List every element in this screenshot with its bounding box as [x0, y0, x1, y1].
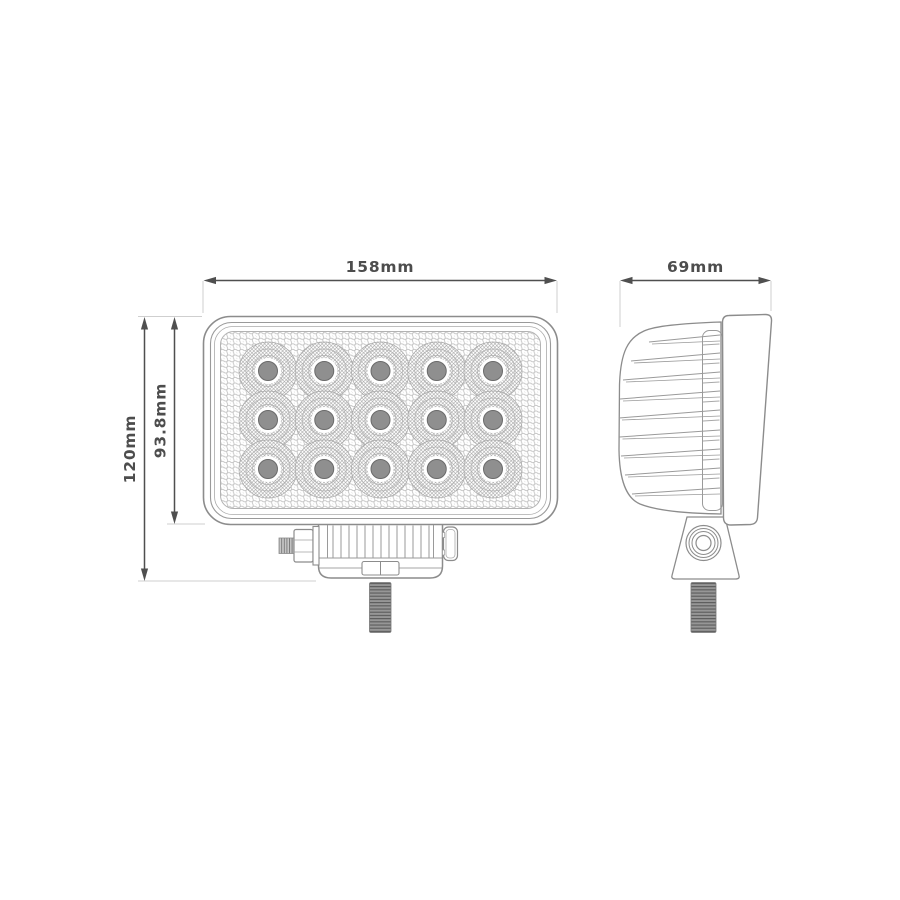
led: [295, 440, 353, 498]
dim-depth-label: 69mm: [667, 258, 724, 276]
bolt-hex-nut: [294, 530, 313, 563]
pivot-bolt-side: [686, 526, 721, 561]
led-array: [239, 342, 522, 498]
threaded-stud-front: [370, 583, 392, 633]
pivot-bolt-left: [279, 527, 319, 566]
bracket-heatsink-ribs: [333, 526, 429, 559]
technical-drawing-page: 158mm 69mm 120mm 93.8mm: [0, 0, 900, 900]
mounting-bracket-front: [279, 525, 458, 633]
led: [408, 440, 466, 498]
bolt-washer: [313, 527, 319, 566]
dim-body-height-label: 93.8mm: [152, 383, 170, 458]
threaded-stud-side: [691, 583, 716, 633]
front-view: [204, 317, 558, 633]
led: [352, 440, 410, 498]
lens-side-profile: [723, 315, 772, 526]
bolt-threaded-tip: [279, 538, 294, 554]
side-view: [619, 315, 772, 633]
dim-overall-height-label: 120mm: [121, 415, 139, 484]
led: [464, 440, 522, 498]
led-worklight-dimension-drawing: 158mm 69mm 120mm 93.8mm: [0, 0, 900, 900]
pivot-knob-right: [443, 527, 458, 561]
dim-width-label: 158mm: [346, 258, 415, 276]
led: [239, 440, 297, 498]
